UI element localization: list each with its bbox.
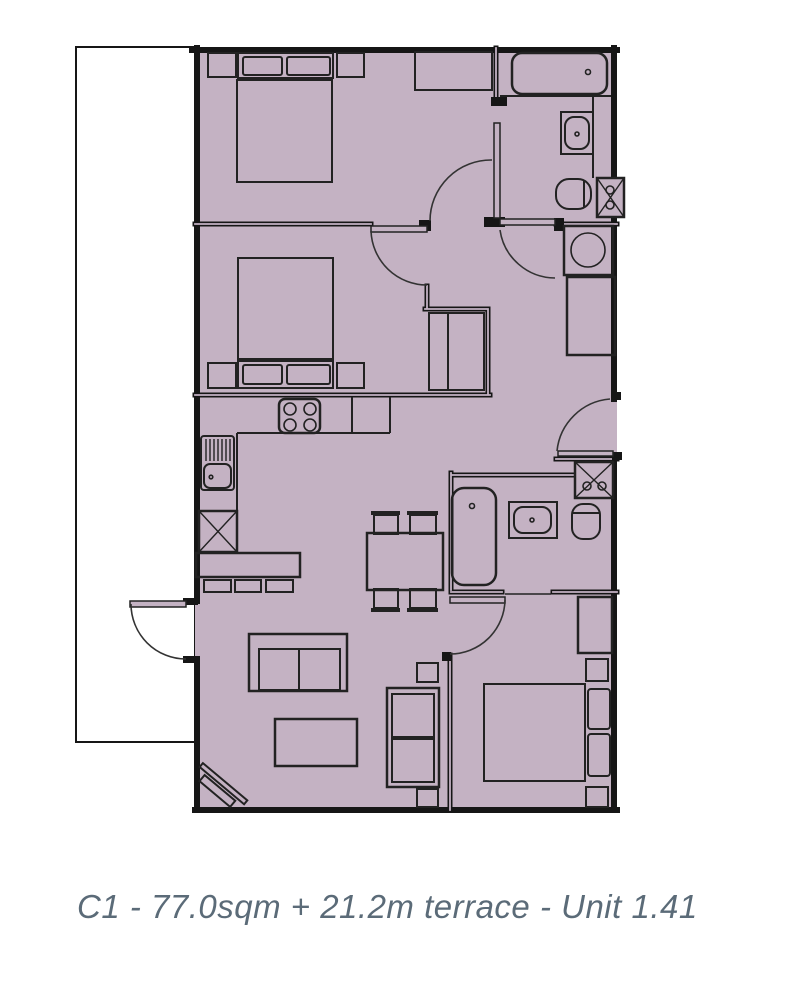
terrace: [76, 47, 195, 742]
floorplan-page: C1 - 77.0sqm + 21.2m terrace - Unit 1.41: [0, 0, 785, 981]
unit-floor: [195, 47, 617, 811]
plan-caption: C1 - 77.0sqm + 21.2m terrace - Unit 1.41: [77, 888, 757, 926]
service-duct-icon: [575, 462, 613, 498]
service-duct-icon: [597, 178, 624, 217]
floor-plan-drawing: [0, 0, 785, 981]
